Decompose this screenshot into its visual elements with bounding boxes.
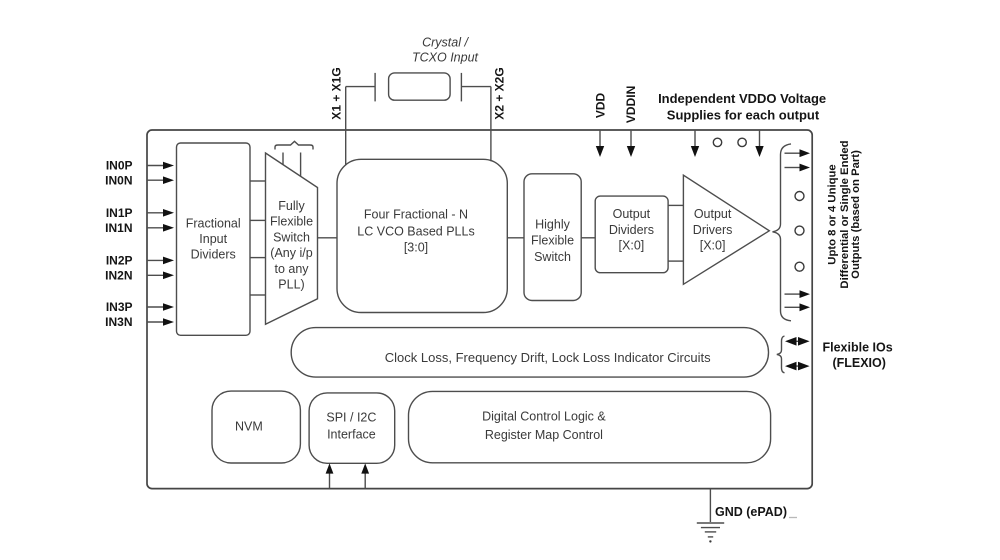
svg-text:(FLEXIO): (FLEXIO) — [832, 356, 885, 370]
svg-text:VDD: VDD — [594, 93, 608, 119]
svg-text:TCXO Input: TCXO Input — [412, 51, 479, 65]
svg-text:Flexible: Flexible — [531, 234, 574, 248]
svg-text:Input: Input — [199, 232, 227, 246]
svg-text:[X:0]: [X:0] — [619, 239, 645, 253]
svg-text:IN0N: IN0N — [105, 174, 132, 188]
svg-text:[3:0]: [3:0] — [404, 240, 428, 254]
svg-text:VDDIN: VDDIN — [624, 86, 638, 123]
svg-text:Crystal /: Crystal / — [422, 35, 469, 49]
svg-text:Register Map Control: Register Map Control — [485, 428, 603, 442]
svg-text:Fully: Fully — [278, 199, 305, 213]
svg-text:X2 + X2G: X2 + X2G — [492, 67, 506, 119]
svg-text:Flexible IOs: Flexible IOs — [823, 341, 893, 355]
svg-text:Drivers: Drivers — [693, 223, 733, 237]
svg-text:Clock Loss, Frequency Drift, L: Clock Loss, Frequency Drift, Lock Loss I… — [385, 350, 711, 365]
svg-text:PLL): PLL) — [278, 278, 304, 292]
svg-text:X1 + X1G: X1 + X1G — [329, 67, 343, 119]
svg-text:Switch: Switch — [273, 230, 310, 244]
svg-text:IN1P: IN1P — [106, 206, 133, 220]
svg-text:Flexible: Flexible — [270, 215, 313, 229]
svg-text:Dividers: Dividers — [609, 223, 654, 237]
svg-text:Dividers: Dividers — [191, 248, 236, 262]
svg-text:IN3N: IN3N — [105, 315, 132, 329]
svg-text:Digital Control Logic &: Digital Control Logic & — [482, 409, 606, 423]
svg-text:IN0P: IN0P — [106, 158, 133, 172]
svg-text:to any: to any — [274, 262, 309, 276]
svg-text:Independent VDDO Voltage: Independent VDDO Voltage — [658, 91, 826, 106]
svg-text:Outputs (based on Part): Outputs (based on Part) — [850, 150, 862, 279]
svg-text:Four Fractional - N: Four Fractional - N — [364, 208, 468, 222]
svg-text:Upto 8 or 4 Unique: Upto 8 or 4 Unique — [826, 164, 838, 264]
svg-text:GND (ePAD): GND (ePAD) — [715, 505, 787, 519]
svg-text:IN2N: IN2N — [105, 268, 132, 282]
svg-text:NVM: NVM — [235, 420, 263, 434]
svg-text:Output: Output — [613, 207, 651, 221]
svg-text:Highly: Highly — [535, 217, 570, 231]
svg-text:Switch: Switch — [534, 250, 571, 264]
svg-text:Supplies for each output: Supplies for each output — [667, 108, 820, 123]
svg-text:(Any i/p: (Any i/p — [270, 246, 312, 260]
svg-text:Output: Output — [694, 207, 732, 221]
svg-text:LC VCO Based PLLs: LC VCO Based PLLs — [357, 225, 474, 239]
svg-text:SPI / I2C: SPI / I2C — [326, 410, 376, 424]
svg-text:IN3P: IN3P — [106, 300, 133, 314]
svg-text:Differential or Single Ended: Differential or Single Ended — [839, 140, 851, 288]
svg-text:Fractional: Fractional — [186, 217, 241, 231]
svg-text:IN2P: IN2P — [106, 253, 133, 267]
svg-text:Interface: Interface — [327, 428, 376, 442]
svg-text:[X:0]: [X:0] — [700, 239, 726, 253]
svg-text:IN1N: IN1N — [105, 221, 132, 235]
